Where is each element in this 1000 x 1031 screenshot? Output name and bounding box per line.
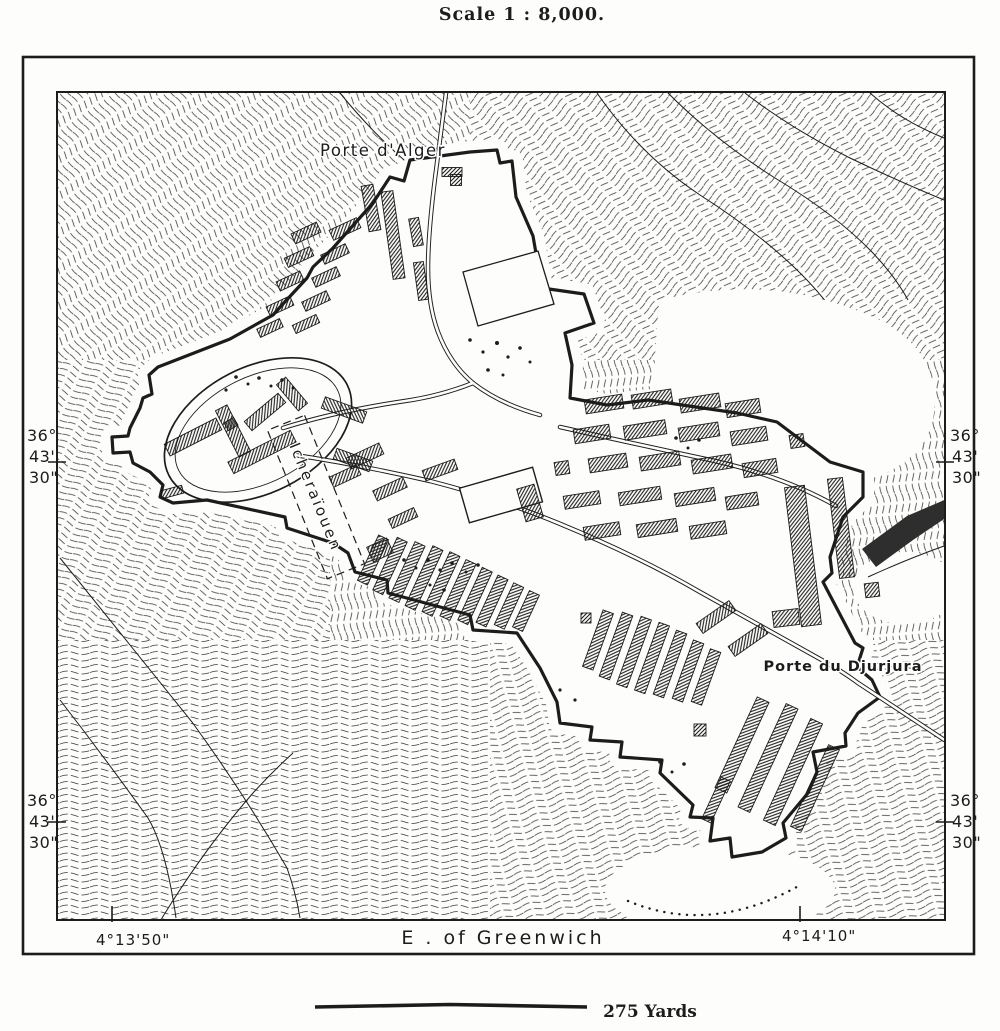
svg-text:36°: 36° (950, 426, 980, 445)
svg-text:43': 43' (29, 812, 55, 831)
svg-text:43': 43' (952, 447, 978, 466)
latitude-label-lower-left: 36° 43' 30" (27, 791, 58, 852)
latitude-label-upper-right: 36° 43' 30" (950, 426, 981, 487)
longitude-label-right: 4°14'10" (782, 927, 856, 945)
longitude-label-center: E . of Greenwich (401, 927, 604, 949)
longitude-label-left: 4°13'50" (96, 931, 170, 949)
map-content: Porte d'Alger Porte du Djurjura Icheraïo… (57, 92, 957, 934)
svg-text:30": 30" (952, 468, 981, 487)
svg-text:30": 30" (29, 833, 58, 852)
svg-text:30": 30" (952, 833, 981, 852)
svg-text:43': 43' (952, 812, 978, 831)
scale-bar-line (315, 1005, 587, 1008)
latitude-label-upper-left: 36° 43' 30" (27, 426, 58, 487)
svg-text:30": 30" (29, 468, 58, 487)
svg-text:36°: 36° (950, 791, 980, 810)
svg-text:43': 43' (29, 447, 55, 466)
map-scale-title: Scale 1 : 8,000. (439, 5, 605, 25)
map-canvas: Scale 1 : 8,000. (0, 0, 1000, 1031)
label-porte-du-djurjura: Porte du Djurjura (763, 659, 922, 675)
scale-bar: 275 Yards (315, 1002, 697, 1022)
svg-text:36°: 36° (27, 426, 57, 445)
latitude-label-lower-right: 36° 43' 30" (950, 791, 981, 852)
svg-text:36°: 36° (27, 791, 57, 810)
engraved-town-plan-page: Scale 1 : 8,000. (0, 0, 1000, 1031)
label-porte-dalger: Porte d'Alger (320, 141, 446, 160)
scale-bar-label: 275 Yards (603, 1002, 697, 1022)
